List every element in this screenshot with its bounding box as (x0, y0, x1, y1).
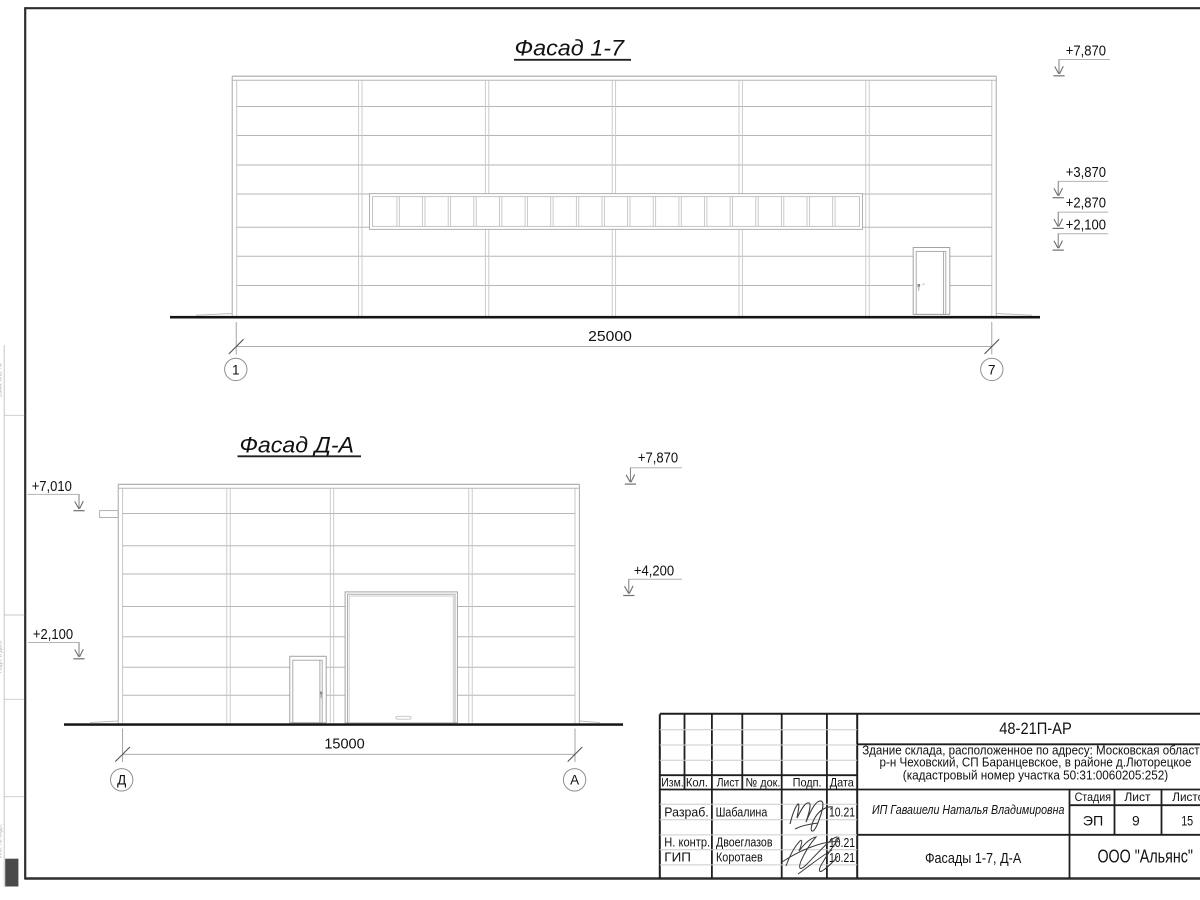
svg-text:Изм.: Изм. (661, 775, 683, 789)
svg-text:Коротаев: Коротаев (716, 850, 763, 865)
svg-text:+2,870: +2,870 (1066, 196, 1106, 212)
svg-text:Подп. и дата: Подп. и дата (0, 640, 4, 673)
svg-text:Подп.: Подп. (793, 775, 822, 789)
svg-text:9: 9 (1132, 814, 1140, 829)
svg-text:Фасады 1-7, Д-А: Фасады 1-7, Д-А (925, 850, 1021, 867)
svg-text:Разраб.: Разраб. (664, 804, 708, 819)
svg-text:ИП Гавашели Наталья Владимиров: ИП Гавашели Наталья Владимировна (872, 802, 1065, 817)
svg-text:15: 15 (1181, 814, 1193, 829)
svg-text:15000: 15000 (324, 737, 364, 753)
svg-text:Стадия: Стадия (1075, 790, 1111, 804)
svg-text:+3,870: +3,870 (1066, 165, 1106, 181)
svg-text:1: 1 (232, 362, 240, 377)
svg-text:+7,870: +7,870 (1066, 43, 1106, 59)
svg-text:48-21П-АР: 48-21П-АР (999, 720, 1072, 738)
svg-text:+7,010: +7,010 (32, 479, 72, 495)
svg-text:ООО "Альянс": ООО "Альянс" (1097, 845, 1193, 866)
svg-text:Лист: Лист (1124, 790, 1151, 804)
svg-text:25000: 25000 (588, 329, 632, 345)
svg-text:Д: Д (117, 773, 126, 788)
svg-text:10.21: 10.21 (829, 850, 855, 865)
svg-text:+2,100: +2,100 (33, 627, 73, 643)
svg-text:А: А (570, 773, 579, 788)
svg-text:+4,200: +4,200 (634, 563, 674, 579)
svg-text:Лист: Лист (717, 775, 740, 789)
svg-text:(кадастровый номер участка 50:: (кадастровый номер участка 50:31:0060205… (903, 767, 1168, 782)
svg-text:Взам. инв. №: Взам. инв. № (0, 363, 4, 397)
svg-text:+7,870: +7,870 (638, 451, 678, 467)
svg-text:Инв. № подл.: Инв. № подл. (0, 823, 4, 858)
svg-text:ЭП: ЭП (1083, 814, 1104, 829)
svg-text:+2,100: +2,100 (1066, 217, 1106, 233)
svg-text:Н. контр.: Н. контр. (664, 835, 710, 850)
svg-text:Фасад 1-7: Фасад 1-7 (515, 36, 626, 61)
svg-text:Шабалина: Шабалина (716, 804, 768, 819)
svg-text:Дата: Дата (830, 775, 854, 789)
svg-text:7: 7 (988, 362, 996, 377)
svg-text:Листов: Листов (1172, 790, 1200, 804)
svg-text:ГИП: ГИП (664, 850, 691, 865)
svg-text:Двоеглазов: Двоеглазов (716, 835, 773, 850)
svg-text:Кол.: Кол. (686, 775, 708, 789)
svg-text:Фасад Д-А: Фасад Д-А (240, 433, 355, 458)
svg-text:№ док.: № док. (746, 775, 781, 789)
